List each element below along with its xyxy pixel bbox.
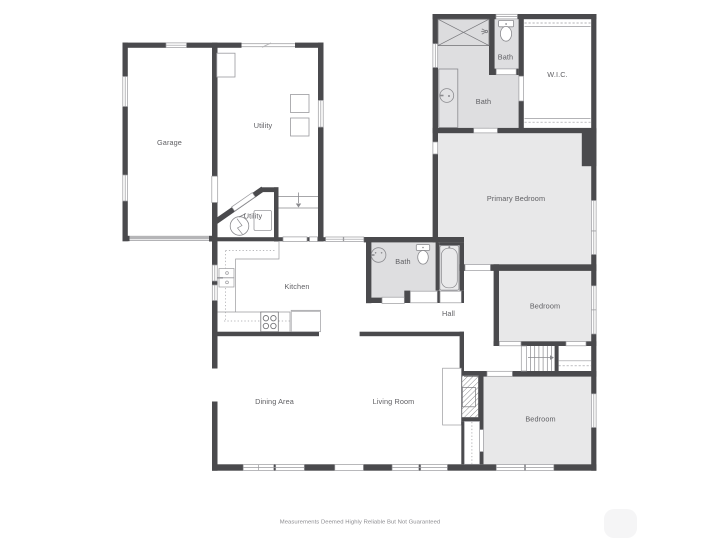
svg-text:Living Room: Living Room	[373, 397, 415, 406]
svg-text:Utility: Utility	[254, 121, 273, 130]
svg-text:Dining Area: Dining Area	[255, 397, 295, 406]
svg-text:Hall: Hall	[442, 309, 455, 318]
svg-text:Utility: Utility	[244, 212, 263, 221]
svg-text:Bedroom: Bedroom	[525, 415, 555, 424]
svg-text:Kitchen: Kitchen	[284, 282, 309, 291]
svg-text:Bath: Bath	[498, 53, 513, 62]
svg-text:Measurements Deemed Highly Rel: Measurements Deemed Highly Reliable But …	[280, 520, 441, 526]
svg-text:Garage: Garage	[157, 138, 182, 147]
svg-text:W.I.C.: W.I.C.	[547, 70, 567, 79]
svg-text:Bath: Bath	[476, 97, 491, 106]
svg-text:Primary Bedroom: Primary Bedroom	[487, 194, 545, 203]
svg-text:Bath: Bath	[395, 257, 410, 266]
svg-text:Bedroom: Bedroom	[530, 302, 560, 311]
